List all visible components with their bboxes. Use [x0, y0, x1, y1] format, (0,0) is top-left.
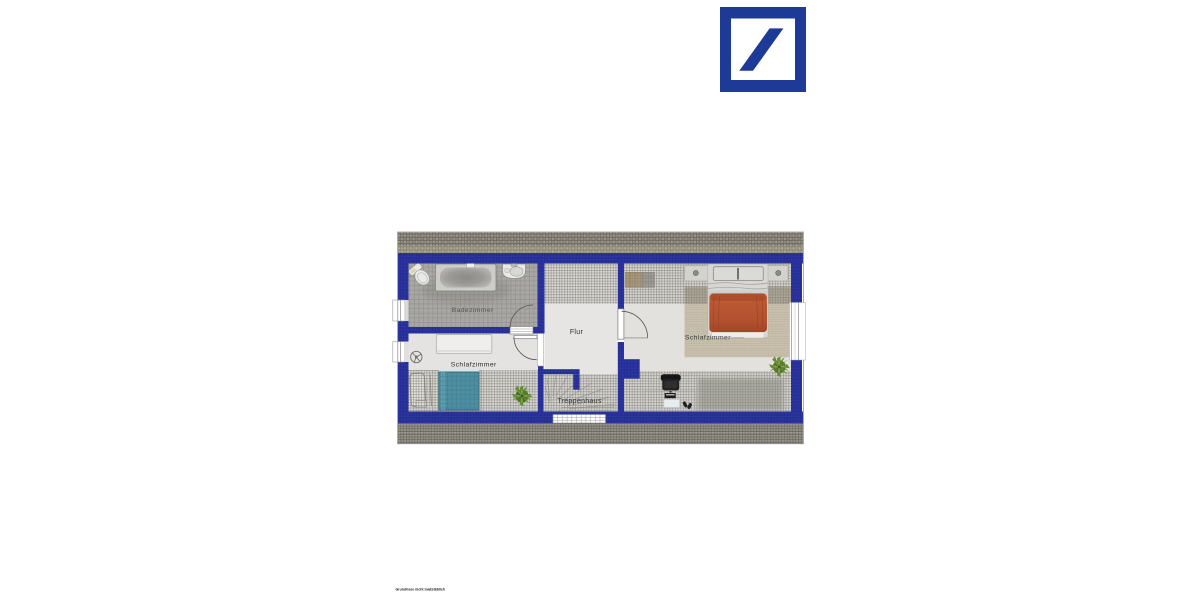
svg-text:Grundrisse nicht maßstäblich: Grundrisse nicht maßstäblich	[396, 588, 445, 592]
svg-text:Treppenhaus: Treppenhaus	[557, 398, 601, 405]
svg-text:Flur: Flur	[570, 329, 584, 336]
svg-text:Badezimmer: Badezimmer	[452, 307, 494, 314]
svg-text:Schlafzimmer: Schlafzimmer	[451, 361, 497, 368]
svg-text:Schlafzimmer: Schlafzimmer	[685, 334, 731, 341]
